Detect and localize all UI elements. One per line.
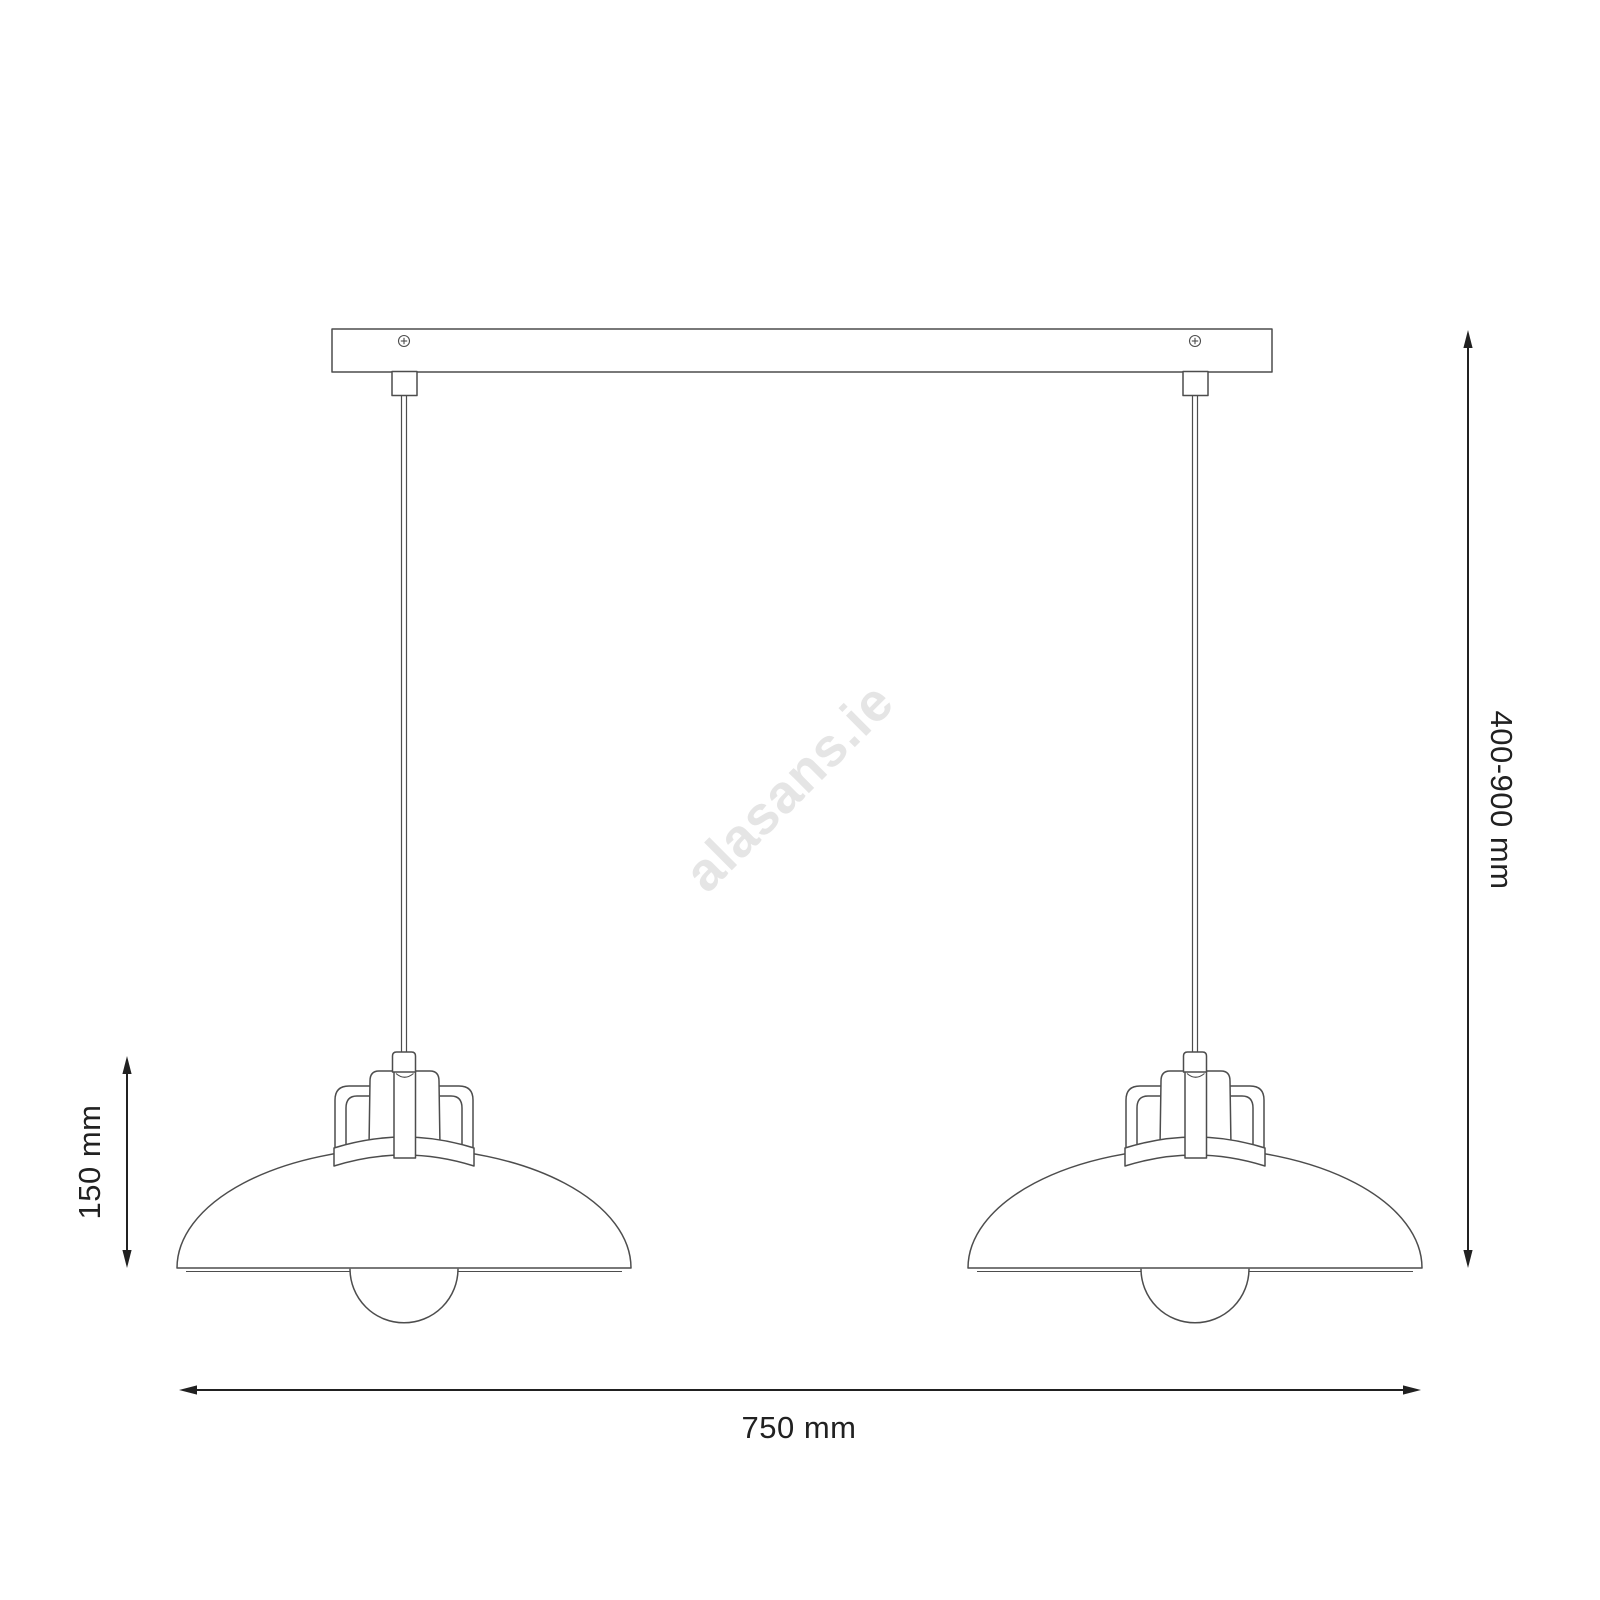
dimension-height-range: 400-900 mm <box>1463 330 1519 1268</box>
arrow-up-icon <box>1463 330 1472 348</box>
dimension-total-width-label: 750 mm <box>742 1410 857 1445</box>
ceiling-mount-bar <box>332 329 1272 372</box>
watermark: alasans.ie <box>673 671 905 903</box>
pendant-assembly-right <box>968 336 1422 1323</box>
arrow-left-icon <box>179 1385 197 1394</box>
arrow-down-icon <box>1463 1250 1472 1268</box>
arrow-right-icon <box>1403 1385 1421 1394</box>
dimension-shade-height: 150 mm <box>72 1056 132 1268</box>
dimension-shade-height-label: 150 mm <box>72 1105 107 1220</box>
diagram-canvas: 400-900 mm 150 mm 750 mm alasans.ie <box>0 0 1600 1600</box>
dimension-total-width: 750 mm <box>179 1385 1421 1445</box>
dimension-height-range-label: 400-900 mm <box>1484 710 1519 889</box>
arrow-down-icon <box>122 1250 131 1268</box>
pendant-light-dimension-diagram: 400-900 mm 150 mm 750 mm alasans.ie <box>0 0 1600 1600</box>
arrow-up-icon <box>122 1056 131 1074</box>
pendant-assembly-left <box>177 336 631 1323</box>
